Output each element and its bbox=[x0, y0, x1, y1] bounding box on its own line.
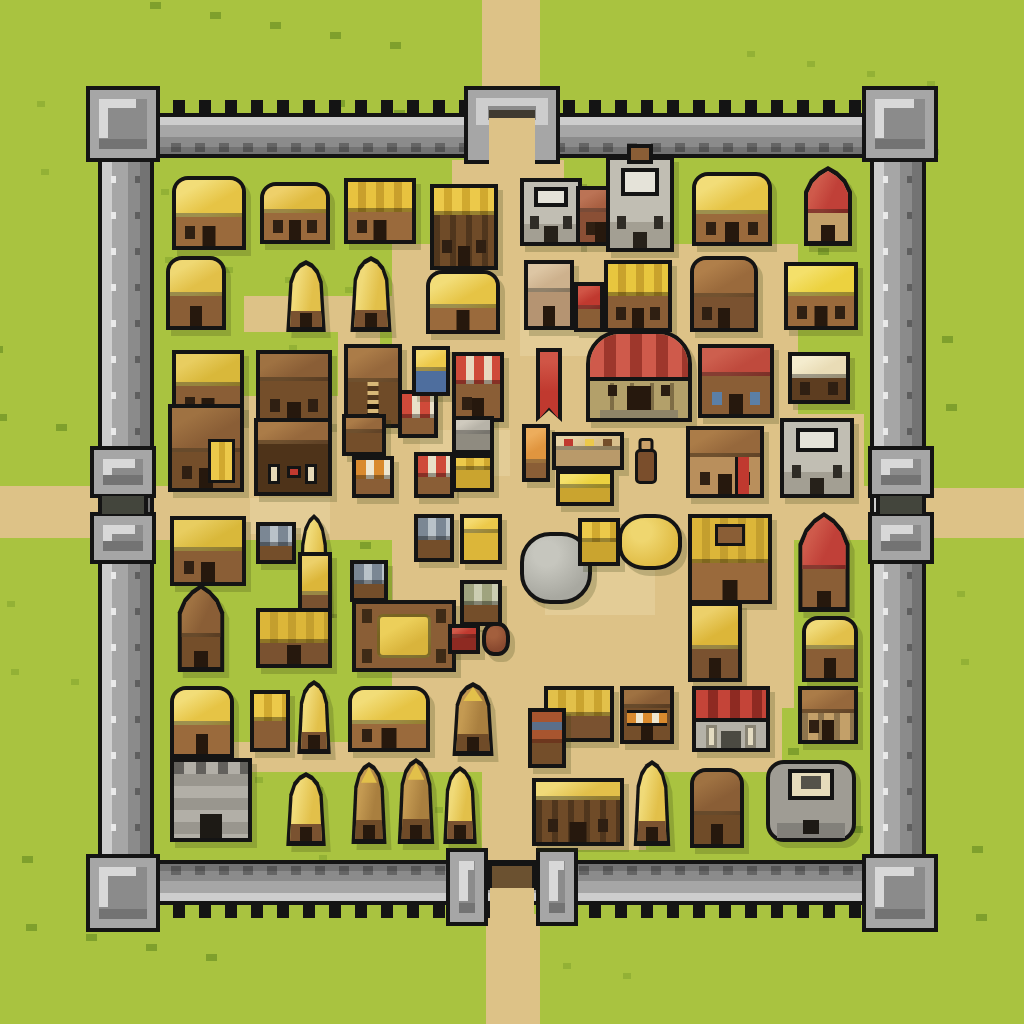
roof bbox=[352, 690, 426, 724]
banner-stall[interactable] bbox=[528, 708, 566, 768]
red-banner-stall[interactable] bbox=[574, 282, 604, 332]
person-body bbox=[635, 449, 657, 484]
roof bbox=[702, 348, 770, 376]
roof bbox=[430, 274, 496, 308]
hall-door bbox=[627, 386, 651, 410]
window-left bbox=[185, 226, 195, 239]
window-left bbox=[617, 216, 626, 229]
market-butcher-stall[interactable] bbox=[254, 418, 332, 496]
tan-house[interactable] bbox=[524, 260, 574, 330]
door bbox=[190, 306, 202, 326]
yellow-crate[interactable] bbox=[578, 518, 620, 566]
door bbox=[810, 478, 824, 494]
wagon-post-nw bbox=[362, 609, 372, 623]
granary-annex[interactable] bbox=[688, 602, 742, 682]
door bbox=[725, 222, 739, 242]
window-right bbox=[598, 819, 608, 832]
bakery-shop[interactable] bbox=[686, 426, 764, 498]
villager[interactable] bbox=[632, 438, 660, 484]
wood-house[interactable] bbox=[256, 350, 332, 426]
window-left bbox=[700, 472, 710, 485]
thatched-house-4[interactable] bbox=[348, 686, 430, 752]
door bbox=[815, 306, 828, 326]
door bbox=[457, 310, 470, 330]
roof bbox=[694, 772, 740, 815]
yellow-chair[interactable] bbox=[460, 514, 502, 564]
door bbox=[822, 720, 834, 740]
stage-center bbox=[721, 731, 741, 748]
round-hut[interactable] bbox=[166, 256, 226, 330]
roof bbox=[456, 458, 490, 470]
window-left bbox=[702, 307, 712, 320]
roof bbox=[528, 264, 570, 292]
game-map bbox=[0, 0, 1024, 1024]
roof bbox=[788, 266, 854, 296]
door bbox=[194, 651, 208, 667]
roof bbox=[532, 712, 562, 743]
door bbox=[363, 825, 375, 839]
roof bbox=[608, 264, 668, 296]
barrel[interactable] bbox=[482, 622, 510, 656]
crate-stall[interactable] bbox=[342, 414, 386, 456]
cream-awning-stall[interactable] bbox=[788, 352, 850, 404]
small-awning-stall[interactable] bbox=[412, 346, 450, 396]
brown-tent-2[interactable] bbox=[346, 762, 392, 844]
tower-shade bbox=[103, 541, 143, 551]
market-bench[interactable] bbox=[552, 432, 624, 470]
window-right bbox=[563, 216, 572, 229]
door bbox=[374, 220, 387, 240]
window-left bbox=[800, 382, 810, 395]
tall-tent-s[interactable] bbox=[628, 760, 676, 846]
window-right bbox=[476, 240, 486, 253]
east-gate-tower-north[interactable] bbox=[868, 446, 934, 498]
window-right bbox=[748, 222, 758, 235]
tower-shade bbox=[459, 903, 475, 913]
sage-awning-stall[interactable] bbox=[460, 580, 502, 626]
tower-highlight-left bbox=[875, 99, 884, 138]
chimney bbox=[627, 144, 653, 164]
west-gate-tower-north[interactable] bbox=[90, 446, 156, 498]
person-head bbox=[639, 438, 654, 452]
roof bbox=[260, 612, 328, 643]
big-window bbox=[534, 187, 569, 206]
window-right bbox=[308, 399, 318, 412]
west-gate-passage[interactable] bbox=[98, 496, 148, 514]
south-gate-tower-east[interactable] bbox=[536, 848, 578, 926]
tower-shade bbox=[875, 909, 925, 919]
yellow-roof-barn-2[interactable] bbox=[170, 516, 246, 586]
great-hall[interactable] bbox=[586, 330, 692, 422]
south-gate-opening[interactable] bbox=[490, 888, 534, 926]
red-roof-house-e[interactable] bbox=[792, 512, 856, 612]
door bbox=[723, 580, 738, 600]
corner-tower-se bbox=[862, 854, 938, 932]
red-door-stripe bbox=[735, 457, 749, 494]
south-gate-arch bbox=[488, 862, 536, 890]
shrine-window bbox=[801, 776, 821, 789]
window-left bbox=[706, 222, 716, 235]
door bbox=[201, 562, 215, 582]
roof bbox=[177, 589, 225, 637]
roof bbox=[418, 518, 450, 540]
window-left bbox=[362, 729, 372, 742]
yellow-tent-sw[interactable] bbox=[438, 766, 482, 844]
tent-house-5[interactable] bbox=[280, 772, 332, 846]
hall-steps bbox=[600, 410, 678, 418]
yellow-striped-crate[interactable] bbox=[452, 454, 494, 492]
window-left bbox=[809, 720, 819, 733]
tower-shade bbox=[99, 909, 147, 919]
window-left bbox=[792, 465, 801, 478]
tent-house-1[interactable] bbox=[280, 260, 332, 332]
wagon-post-sw bbox=[362, 649, 372, 663]
window-left bbox=[357, 220, 367, 233]
slat-window-shop[interactable] bbox=[798, 686, 858, 744]
roof bbox=[176, 180, 242, 217]
door bbox=[824, 658, 836, 678]
east-gate-tower-south[interactable] bbox=[868, 512, 934, 564]
roof bbox=[578, 286, 600, 309]
roof bbox=[464, 518, 498, 533]
tower-shade bbox=[549, 903, 565, 913]
window-left bbox=[616, 307, 626, 320]
hall-window-right bbox=[661, 385, 670, 396]
bench-item-red bbox=[564, 439, 573, 446]
roof bbox=[802, 690, 854, 713]
roof bbox=[356, 460, 390, 479]
tower-highlight-left bbox=[875, 867, 884, 907]
orange-stripe-shop[interactable] bbox=[620, 686, 674, 744]
window-right bbox=[650, 307, 660, 320]
tent-house-2[interactable] bbox=[344, 256, 398, 332]
door bbox=[646, 827, 658, 841]
slate-crate-stall[interactable] bbox=[350, 560, 388, 602]
window-right bbox=[307, 220, 317, 233]
brown-house-annex[interactable] bbox=[690, 256, 758, 332]
door bbox=[543, 306, 555, 326]
window-left bbox=[530, 216, 539, 229]
door bbox=[817, 591, 831, 607]
roof bbox=[418, 456, 450, 477]
corner-tower-sw bbox=[86, 854, 160, 932]
yellow-awning-shop[interactable] bbox=[604, 260, 672, 332]
red-roof-house-ne[interactable] bbox=[798, 166, 858, 246]
roof bbox=[806, 620, 854, 649]
keep-teeth bbox=[174, 762, 248, 774]
tower-shade bbox=[881, 475, 921, 485]
roof bbox=[348, 348, 398, 382]
roof bbox=[434, 188, 494, 215]
red-awning-stall[interactable] bbox=[414, 452, 454, 498]
hall-roof bbox=[590, 334, 688, 381]
roof bbox=[560, 474, 610, 488]
door bbox=[203, 226, 216, 246]
granary-complex[interactable] bbox=[688, 514, 772, 604]
roof bbox=[174, 690, 230, 725]
roof bbox=[526, 428, 546, 463]
window-right bbox=[750, 392, 760, 405]
window-left bbox=[270, 399, 280, 412]
red-banner[interactable] bbox=[536, 348, 562, 422]
south-gate-tower-west[interactable] bbox=[446, 848, 488, 926]
curtains bbox=[696, 690, 766, 722]
roof bbox=[176, 354, 240, 386]
roof bbox=[792, 356, 846, 378]
door bbox=[821, 225, 835, 241]
roof bbox=[302, 556, 328, 595]
door bbox=[458, 246, 470, 266]
door bbox=[570, 822, 587, 842]
roof bbox=[624, 690, 670, 708]
door bbox=[365, 313, 377, 327]
red-crate[interactable] bbox=[448, 624, 480, 654]
stone-church[interactable] bbox=[606, 156, 674, 252]
door bbox=[633, 232, 647, 248]
west-gate-tower-south[interactable] bbox=[90, 512, 156, 564]
door bbox=[709, 658, 721, 678]
tower-shade bbox=[875, 139, 925, 149]
keep-door bbox=[200, 814, 222, 838]
window-left bbox=[462, 397, 472, 410]
window-left bbox=[797, 306, 807, 319]
yellow-table[interactable] bbox=[556, 470, 614, 506]
orange-stand[interactable] bbox=[522, 424, 550, 482]
thatched-house-nw[interactable] bbox=[172, 176, 246, 250]
roof bbox=[402, 394, 434, 418]
door bbox=[287, 645, 301, 664]
thatched-house-sw[interactable] bbox=[170, 686, 234, 758]
brown-peak-house[interactable] bbox=[172, 584, 230, 672]
door bbox=[454, 825, 466, 839]
stall-goods-red bbox=[287, 466, 301, 478]
window-right bbox=[654, 216, 663, 229]
window-left bbox=[184, 561, 194, 574]
roof bbox=[536, 782, 620, 800]
bench-item-brown bbox=[603, 439, 612, 446]
roof bbox=[464, 584, 498, 605]
slate-awning-stall[interactable] bbox=[256, 522, 296, 564]
corner-tower-ne bbox=[862, 86, 938, 162]
roof bbox=[170, 260, 222, 296]
gray-crate[interactable] bbox=[452, 416, 494, 454]
granary-hall[interactable] bbox=[256, 608, 332, 668]
big-window bbox=[796, 428, 838, 451]
brown-tent-3[interactable] bbox=[392, 758, 440, 844]
long-barn[interactable] bbox=[532, 778, 624, 846]
yellow-stall[interactable] bbox=[250, 690, 290, 752]
awning-band bbox=[627, 710, 667, 726]
roof bbox=[696, 176, 768, 214]
door bbox=[467, 737, 479, 751]
window-right bbox=[835, 306, 845, 319]
map-layers bbox=[0, 0, 1024, 1024]
crate-stack bbox=[208, 439, 235, 483]
roof bbox=[803, 171, 853, 213]
stall-goods-2 bbox=[305, 464, 317, 484]
stall-goods-1 bbox=[268, 464, 280, 484]
roof bbox=[692, 606, 738, 649]
door bbox=[382, 728, 397, 748]
roof bbox=[254, 694, 286, 721]
window-right bbox=[828, 382, 838, 395]
theater[interactable] bbox=[692, 686, 770, 752]
granary-wing[interactable] bbox=[298, 552, 332, 612]
roof bbox=[260, 526, 292, 546]
stone-guildhall[interactable] bbox=[780, 418, 854, 498]
door bbox=[632, 308, 644, 328]
yellow-hut[interactable] bbox=[802, 616, 858, 682]
window-left bbox=[182, 466, 192, 479]
tower-highlight-left bbox=[99, 867, 108, 907]
tower-shade bbox=[103, 475, 143, 485]
striped-roof-house[interactable] bbox=[344, 178, 416, 244]
door bbox=[308, 735, 320, 749]
roof bbox=[348, 182, 412, 212]
thatched-longhouse[interactable] bbox=[692, 172, 772, 246]
striped-tent-stall[interactable] bbox=[398, 390, 438, 438]
door bbox=[729, 394, 743, 414]
corner-tower-nw bbox=[86, 86, 160, 162]
shrine-door bbox=[803, 820, 819, 834]
wagon-tarp bbox=[377, 614, 431, 658]
thatched-house-2[interactable] bbox=[260, 182, 330, 244]
door bbox=[410, 825, 422, 839]
roof bbox=[456, 420, 490, 434]
tower-shade bbox=[881, 541, 921, 551]
roof bbox=[416, 350, 446, 371]
stage-pillar-right bbox=[745, 725, 756, 748]
door bbox=[300, 313, 312, 327]
roof bbox=[260, 354, 328, 381]
storehouse[interactable] bbox=[168, 404, 244, 492]
wagon-post-ne bbox=[436, 609, 446, 623]
red-roof-shop[interactable] bbox=[698, 344, 774, 418]
bench-item-yellow bbox=[585, 439, 594, 446]
tower-highlight-left bbox=[99, 99, 108, 138]
roof bbox=[690, 430, 760, 457]
brown-tent[interactable] bbox=[446, 682, 500, 756]
tent-house-3[interactable] bbox=[292, 680, 336, 754]
door bbox=[718, 308, 730, 328]
door bbox=[289, 220, 301, 240]
roof bbox=[456, 356, 500, 384]
roof bbox=[346, 418, 382, 433]
big-window bbox=[621, 168, 659, 196]
east-gate-passage[interactable] bbox=[876, 496, 926, 514]
window-right bbox=[833, 465, 842, 478]
round-brown-house[interactable] bbox=[690, 768, 744, 848]
stone-cottage[interactable] bbox=[520, 178, 582, 246]
flat-roof-yellow-house[interactable] bbox=[784, 262, 858, 330]
door bbox=[472, 398, 484, 418]
window-left bbox=[442, 240, 452, 253]
stone-keep[interactable] bbox=[170, 758, 252, 842]
road-south-outside bbox=[486, 914, 540, 1024]
roof bbox=[354, 564, 384, 584]
tall-market-stall[interactable] bbox=[430, 184, 498, 270]
stone-shrine[interactable] bbox=[766, 760, 856, 842]
door bbox=[718, 474, 732, 494]
window-left bbox=[273, 220, 283, 233]
slate-awning-stall-2[interactable] bbox=[414, 514, 454, 562]
stage-pillar-left bbox=[706, 725, 717, 748]
tower-highlight-left bbox=[459, 861, 468, 901]
thatched-cottage-mid[interactable] bbox=[426, 270, 500, 334]
window-left bbox=[712, 392, 722, 405]
door bbox=[711, 824, 723, 844]
door bbox=[544, 226, 558, 242]
roof bbox=[694, 260, 754, 297]
roof bbox=[452, 628, 476, 638]
roof bbox=[258, 422, 328, 444]
tower-highlight-left bbox=[549, 861, 558, 901]
wagon-post-se bbox=[436, 649, 446, 663]
hall-window-left bbox=[608, 385, 617, 396]
roof bbox=[797, 517, 851, 569]
north-gate-opening[interactable] bbox=[489, 118, 535, 166]
window-left bbox=[548, 819, 558, 832]
roof bbox=[582, 522, 616, 542]
door bbox=[300, 827, 312, 841]
roof bbox=[174, 520, 242, 551]
hay-mound[interactable] bbox=[618, 514, 682, 570]
roof bbox=[264, 186, 326, 213]
orange-awning-stall[interactable] bbox=[352, 456, 394, 498]
roof-stack bbox=[715, 524, 745, 546]
tower-shade bbox=[99, 139, 147, 149]
red-awning-shop[interactable] bbox=[452, 352, 504, 422]
door bbox=[196, 734, 208, 754]
market-wagon[interactable] bbox=[352, 600, 456, 672]
